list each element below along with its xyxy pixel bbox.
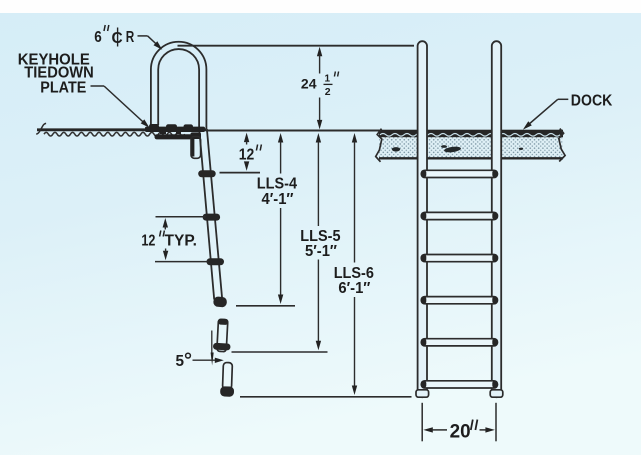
svg-text:5: 5 bbox=[176, 353, 185, 370]
svg-text:20: 20 bbox=[450, 422, 471, 443]
svg-text:6′-1″: 6′-1″ bbox=[338, 280, 371, 297]
svg-text:TYP.: TYP. bbox=[165, 232, 198, 249]
svg-text:PLATE: PLATE bbox=[40, 79, 86, 96]
svg-text:12: 12 bbox=[239, 146, 255, 163]
svg-text:DOCK: DOCK bbox=[571, 93, 613, 110]
svg-text:2: 2 bbox=[325, 86, 331, 98]
svg-text:24: 24 bbox=[301, 75, 317, 91]
svg-text:6: 6 bbox=[94, 29, 102, 46]
svg-text:4′-1″: 4′-1″ bbox=[262, 191, 295, 208]
svg-text:12: 12 bbox=[141, 232, 155, 249]
svg-text:5′-1″: 5′-1″ bbox=[305, 243, 338, 260]
svg-text:1: 1 bbox=[325, 74, 331, 85]
svg-text:R: R bbox=[126, 29, 135, 46]
